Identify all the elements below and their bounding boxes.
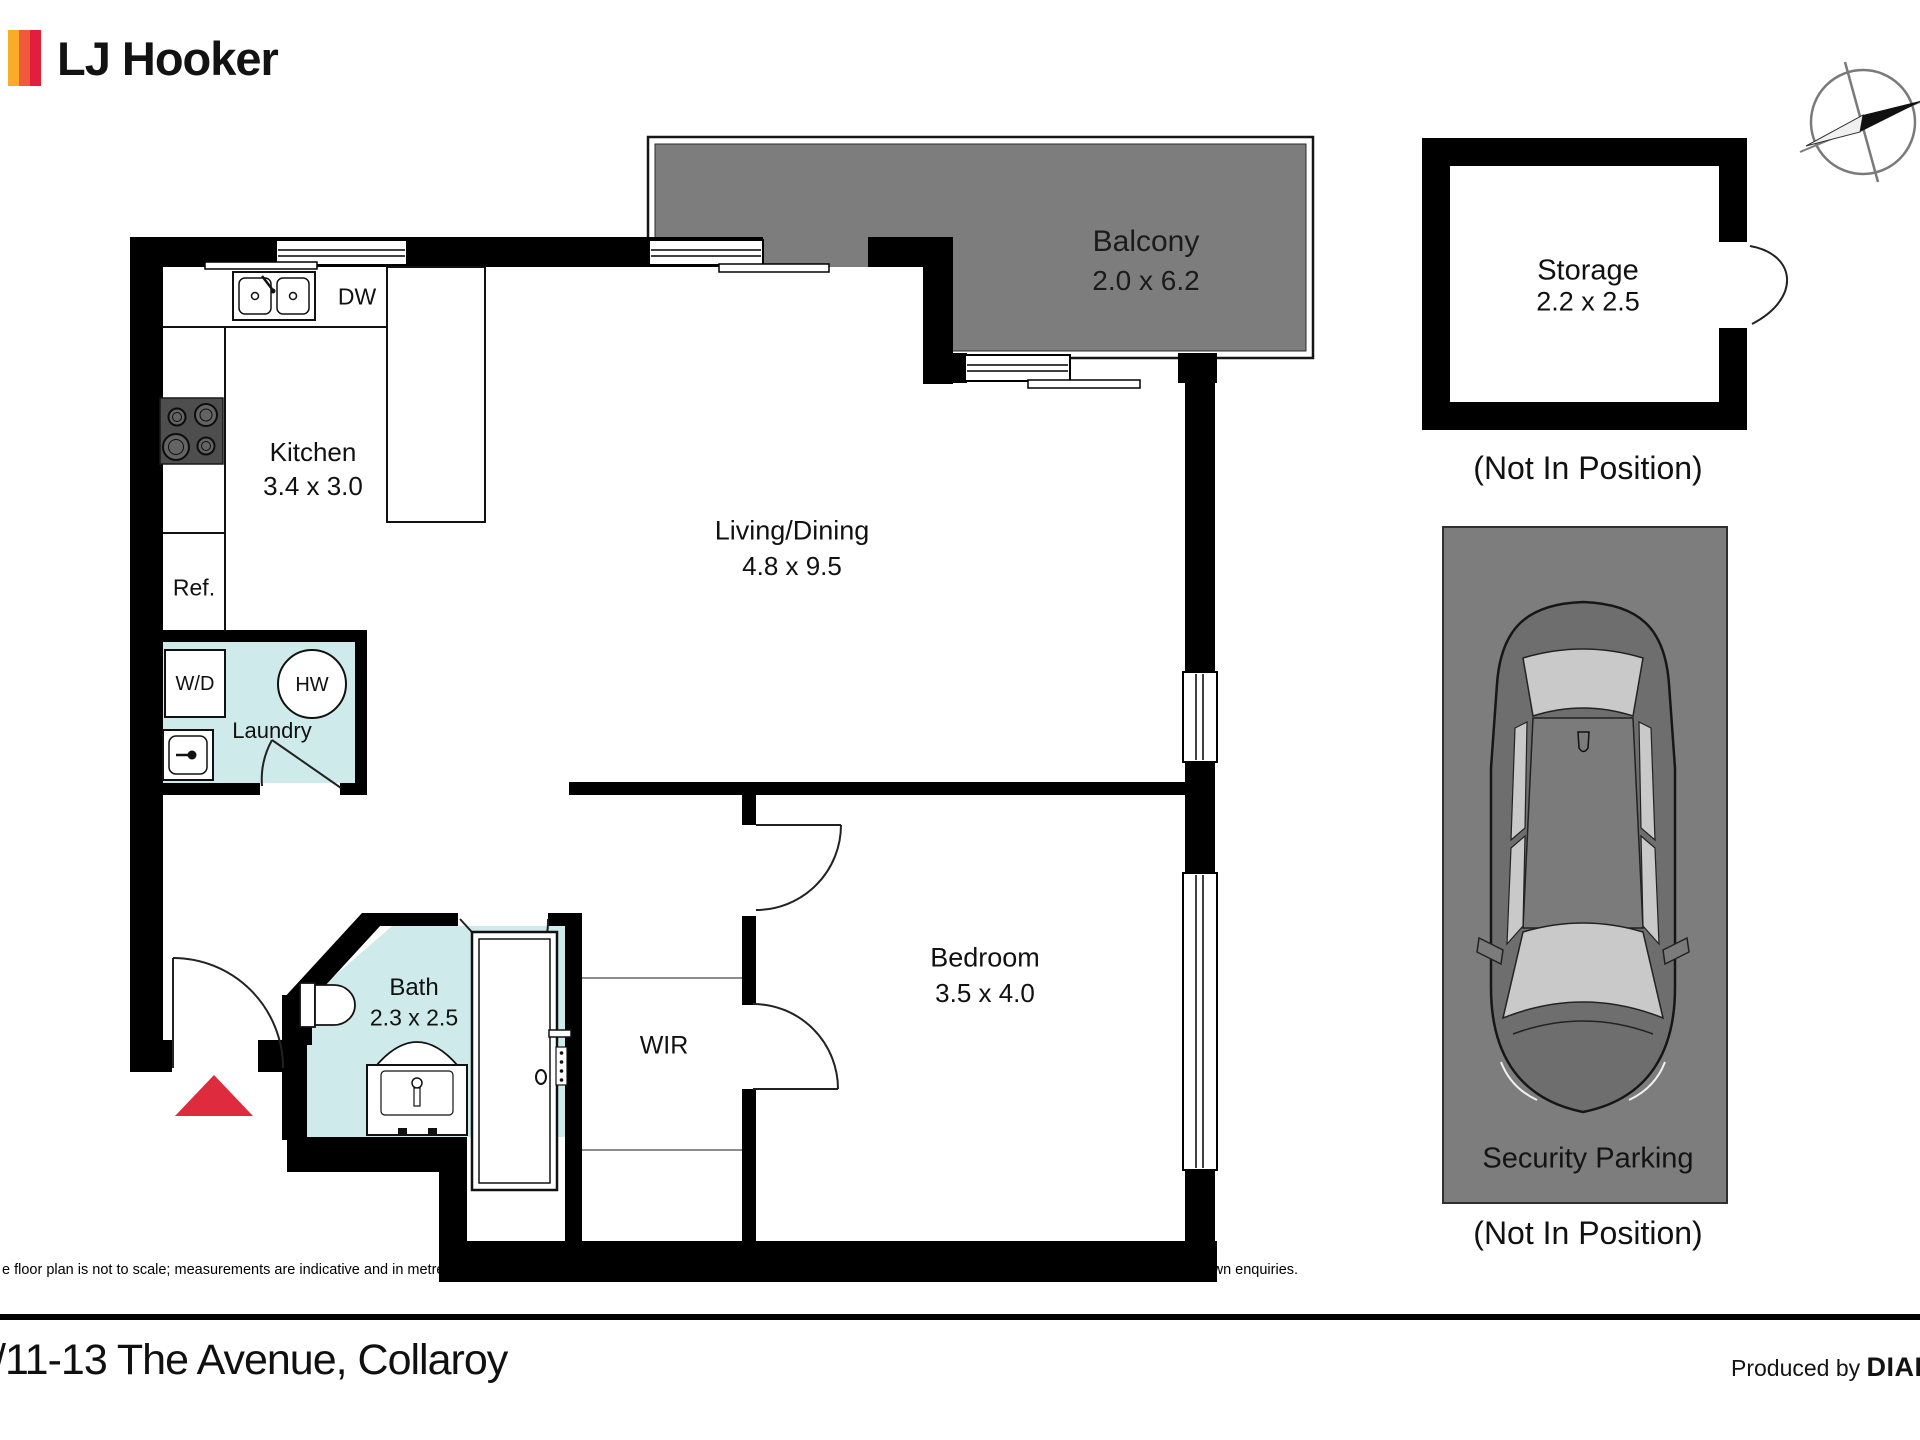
storage-label: Storage: [1537, 257, 1639, 286]
wir-label: WIR: [640, 1034, 689, 1059]
laundry-label: Laundry: [232, 720, 312, 742]
kitchen-dims: 3.4 x 3.0: [263, 473, 363, 499]
living-balcony-window: [649, 240, 763, 265]
dishwasher-label: DW: [338, 286, 376, 309]
produced-by-text: Produced by: [1731, 1355, 1860, 1381]
disclaimer-text: e floor plan is not to scale; measuremen…: [2, 1262, 1298, 1278]
living-dims: 4.8 x 9.5: [742, 553, 842, 579]
footer-divider-line: [0, 1314, 1920, 1320]
parking-label: Security Parking: [1482, 1145, 1693, 1174]
floorplan-page: LJ Hooker Balcony 2.0 x 6.2 Living/Dinin…: [0, 0, 1920, 1440]
fridge-label: Ref.: [173, 577, 215, 600]
balcony-dims: 2.0 x 6.2: [1092, 267, 1199, 295]
parking-note: (Not In Position): [1473, 1217, 1702, 1249]
shower-enclosure-icon: [472, 932, 571, 1190]
storage-door: [1750, 246, 1787, 324]
ljhooker-logo-stripes-icon: [8, 30, 41, 86]
living-east-window: [1183, 672, 1217, 762]
washer-dryer-label: W/D: [176, 674, 215, 694]
balcony-label: Balcony: [1093, 227, 1200, 257]
kitchen-island: [387, 267, 485, 522]
living-label: Living/Dining: [715, 518, 870, 545]
kitchen-sink-icon: [233, 272, 315, 320]
bedroom-window: [1183, 873, 1217, 1170]
bath-label: Bath: [389, 976, 438, 1000]
balcony-south-window: [965, 355, 1070, 381]
brand-name: LJ Hooker: [57, 31, 278, 86]
ljhooker-logo: LJ Hooker: [8, 30, 278, 86]
car-icon: [1477, 602, 1689, 1112]
kitchen-label: Kitchen: [270, 439, 357, 465]
property-address: /11-13 The Avenue, Collaroy: [0, 1336, 507, 1385]
hot-water-label: HW: [295, 675, 328, 695]
compass-icon: [1800, 62, 1920, 182]
bedroom-dims: 3.5 x 4.0: [935, 980, 1035, 1006]
storage-dims: 2.2 x 2.5: [1536, 289, 1640, 316]
bath-dims: 2.3 x 2.5: [370, 1007, 458, 1030]
toilet-icon: [300, 983, 355, 1027]
laundry-tub-icon: [163, 730, 213, 780]
storage-note: (Not In Position): [1473, 452, 1702, 484]
produced-by: Produced by DIAKRIT: [1731, 1352, 1920, 1383]
producer-brand: DIAKRIT: [1867, 1352, 1920, 1382]
bedroom-label: Bedroom: [930, 945, 1040, 972]
stove-icon: [160, 398, 223, 464]
parking-space: [1443, 527, 1727, 1203]
